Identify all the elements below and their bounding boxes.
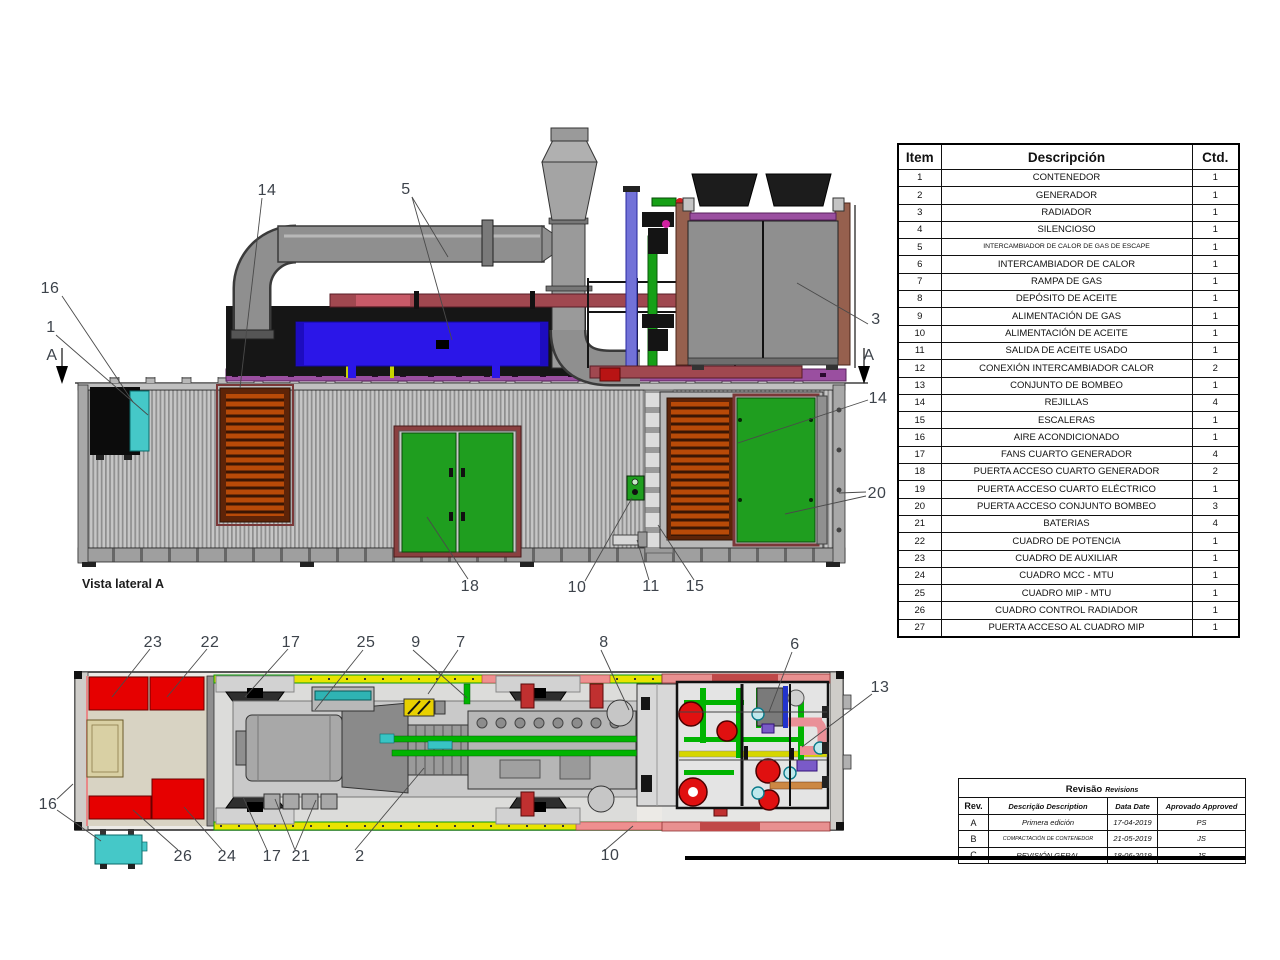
louver-grille-left bbox=[217, 385, 293, 525]
callout-10: 10 bbox=[568, 579, 587, 597]
bom-item: 18 bbox=[898, 464, 941, 481]
bom-row: 17FANS CUARTO GENERADOR4 bbox=[898, 446, 1239, 463]
callout-A: A bbox=[863, 347, 874, 365]
bom-desc: PUERTA ACCESO CONJUNTO BOMBEO bbox=[941, 498, 1192, 515]
bom-row: 8DEPÓSITO DE ACEITE1 bbox=[898, 291, 1239, 308]
oil-feed-box bbox=[627, 476, 644, 500]
bom-item: 20 bbox=[898, 498, 941, 515]
callout-9: 9 bbox=[411, 634, 420, 652]
bom-row: 14REJILLAS4 bbox=[898, 394, 1239, 411]
bom-row: 1CONTENEDOR1 bbox=[898, 170, 1239, 187]
bom-item: 12 bbox=[898, 360, 941, 377]
bom-desc: INTERCAMBIADOR DE CALOR bbox=[941, 256, 1192, 273]
bom-desc: CUADRO CONTROL RADIADOR bbox=[941, 602, 1192, 619]
bom-qty: 1 bbox=[1192, 325, 1239, 342]
bom-item: 5 bbox=[898, 239, 941, 256]
bom-row: 13CONJUNTO DE BOMBEO1 bbox=[898, 377, 1239, 394]
bom-row: 3RADIADOR1 bbox=[898, 204, 1239, 221]
bom-row: 27PUERTA ACCESO AL CUADRO MIP1 bbox=[898, 619, 1239, 637]
bom-item: 8 bbox=[898, 291, 941, 308]
bom-qty: 1 bbox=[1192, 377, 1239, 394]
rev-letter: B bbox=[959, 831, 989, 847]
bom-item: 9 bbox=[898, 308, 941, 325]
bom-desc: CUADRO MIP - MTU bbox=[941, 585, 1192, 602]
bom-item: 11 bbox=[898, 342, 941, 359]
gas-ramp bbox=[404, 699, 445, 716]
bom-row: 6INTERCAMBIADOR DE CALOR1 bbox=[898, 256, 1239, 273]
bom-desc: AIRE ACONDICIONADO bbox=[941, 429, 1192, 446]
callout-A: A bbox=[46, 347, 57, 365]
rev-desc: COMPACTACIÓN DE CONTENEDOR bbox=[989, 831, 1108, 847]
bom-desc: GENERADOR bbox=[941, 187, 1192, 204]
callout-13: 13 bbox=[871, 679, 890, 697]
bom-desc: SILENCIOSO bbox=[941, 221, 1192, 238]
bom-desc: PUERTA ACCESO CUARTO ELÉCTRICO bbox=[941, 481, 1192, 498]
revision-title: RevisãoRevisions bbox=[959, 779, 1246, 798]
revision-title-pt: Revisão bbox=[1066, 784, 1102, 795]
bom-item: 3 bbox=[898, 204, 941, 221]
bom-item: 22 bbox=[898, 533, 941, 550]
plan-view bbox=[57, 649, 872, 869]
rev-approved: JS bbox=[1158, 831, 1246, 847]
revision-header-row: Rev. Descrição Description Data Date Apr… bbox=[959, 798, 1246, 815]
bom-qty: 1 bbox=[1192, 291, 1239, 308]
callout-18: 18 bbox=[461, 578, 480, 596]
bom-row: 23CUADRO DE AUXILIAR1 bbox=[898, 550, 1239, 567]
bom-row: 25CUADRO MIP - MTU1 bbox=[898, 585, 1239, 602]
revision-header-desc: Descrição Description bbox=[989, 798, 1108, 815]
callout-15: 15 bbox=[686, 578, 705, 596]
rev-date: 21-05-2019 bbox=[1108, 831, 1158, 847]
bom-row: 16AIRE ACONDICIONADO1 bbox=[898, 429, 1239, 446]
bom-desc: INTERCAMBIADOR DE CALOR DE GAS DE ESCAPE bbox=[941, 239, 1192, 256]
bom-desc: BATERIAS bbox=[941, 515, 1192, 532]
callout-16: 16 bbox=[39, 796, 58, 814]
callout-11: 11 bbox=[642, 578, 660, 596]
bom-row: 21BATERIAS4 bbox=[898, 515, 1239, 532]
callout-24: 24 bbox=[218, 848, 237, 866]
bom-header-row: Item Descripción Ctd. bbox=[898, 144, 1239, 170]
bom-row: 19PUERTA ACCESO CUARTO ELÉCTRICO1 bbox=[898, 481, 1239, 498]
bom-qty: 1 bbox=[1192, 550, 1239, 567]
bom-desc: DEPÓSITO DE ACEITE bbox=[941, 291, 1192, 308]
revision-title-row: RevisãoRevisions bbox=[959, 779, 1246, 798]
callout-17: 17 bbox=[282, 634, 301, 652]
bom-row: 2GENERADOR1 bbox=[898, 187, 1239, 204]
bom-qty: 4 bbox=[1192, 394, 1239, 411]
bom-row: 18PUERTA ACCESO CUARTO GENERADOR2 bbox=[898, 464, 1239, 481]
bom-item: 14 bbox=[898, 394, 941, 411]
bom-desc: REJILLAS bbox=[941, 394, 1192, 411]
rev-letter: A bbox=[959, 815, 989, 831]
bom-row: 20PUERTA ACCESO CONJUNTO BOMBEO3 bbox=[898, 498, 1239, 515]
bom-item: 24 bbox=[898, 567, 941, 584]
bom-row: 4SILENCIOSO1 bbox=[898, 221, 1239, 238]
bom-row: 10ALIMENTACIÓN DE ACEITE1 bbox=[898, 325, 1239, 342]
rev-desc: Primera edición bbox=[989, 815, 1108, 831]
callout-7: 7 bbox=[456, 634, 465, 652]
bom-qty: 1 bbox=[1192, 187, 1239, 204]
bom-row: 26CUADRO CONTROL RADIADOR1 bbox=[898, 602, 1239, 619]
radiator-pipes bbox=[623, 186, 684, 369]
bom-row: 11SALIDA DE ACEITE USADO1 bbox=[898, 342, 1239, 359]
ac-unit-side bbox=[90, 387, 149, 460]
callout-14: 14 bbox=[869, 390, 888, 408]
bom-qty: 1 bbox=[1192, 342, 1239, 359]
bom-qty: 1 bbox=[1192, 602, 1239, 619]
bom-qty: 1 bbox=[1192, 412, 1239, 429]
bom-item: 27 bbox=[898, 619, 941, 637]
bom-desc: FANS CUARTO GENERADOR bbox=[941, 446, 1192, 463]
side-view-caption: Vista lateral A bbox=[82, 577, 164, 591]
bom-qty: 3 bbox=[1192, 498, 1239, 515]
bom-qty: 2 bbox=[1192, 464, 1239, 481]
bom-item: 26 bbox=[898, 602, 941, 619]
bom-item: 6 bbox=[898, 256, 941, 273]
bom-desc: CUADRO DE POTENCIA bbox=[941, 533, 1192, 550]
bom-item: 13 bbox=[898, 377, 941, 394]
rev-approved: PS bbox=[1158, 815, 1246, 831]
bom-desc: ESCALERAS bbox=[941, 412, 1192, 429]
bom-item: 19 bbox=[898, 481, 941, 498]
bom-row: 5INTERCAMBIADOR DE CALOR DE GAS DE ESCAP… bbox=[898, 239, 1239, 256]
bom-desc: CONJUNTO DE BOMBEO bbox=[941, 377, 1192, 394]
revision-header-approved: Aprovado Approved bbox=[1158, 798, 1246, 815]
bom-qty: 1 bbox=[1192, 221, 1239, 238]
callout-10: 10 bbox=[601, 847, 620, 865]
bom-row: 7RAMPA DE GAS1 bbox=[898, 273, 1239, 290]
callout-23: 23 bbox=[144, 634, 163, 652]
callout-16: 16 bbox=[41, 280, 60, 298]
bom-row: 9ALIMENTACIÓN DE GAS1 bbox=[898, 308, 1239, 325]
callout-8: 8 bbox=[599, 634, 608, 652]
bom-item: 10 bbox=[898, 325, 941, 342]
bom-desc: CUADRO DE AUXILIAR bbox=[941, 550, 1192, 567]
callout-6: 6 bbox=[790, 636, 799, 654]
bom-desc: CUADRO MCC - MTU bbox=[941, 567, 1192, 584]
bom-qty: 1 bbox=[1192, 619, 1239, 637]
bom-row: 15ESCALERAS1 bbox=[898, 412, 1239, 429]
section-marker-A-left bbox=[56, 348, 68, 384]
pump-room-facade bbox=[660, 392, 827, 548]
bom-qty: 1 bbox=[1192, 256, 1239, 273]
bom-qty: 4 bbox=[1192, 515, 1239, 532]
bom-row: 12CONEXIÓN INTERCAMBIADOR CALOR2 bbox=[898, 360, 1239, 377]
bom-item: 4 bbox=[898, 221, 941, 238]
bom-item: 15 bbox=[898, 412, 941, 429]
callout-1: 1 bbox=[46, 319, 55, 337]
revision-header-rev: Rev. bbox=[959, 798, 989, 815]
bom-qty: 1 bbox=[1192, 429, 1239, 446]
bom-qty: 1 bbox=[1192, 239, 1239, 256]
engineering-drawing-page: 161A1453A142018101115 232217259786131626… bbox=[0, 0, 1280, 960]
bom-table: Item Descripción Ctd. 1CONTENEDOR12GENER… bbox=[897, 143, 1240, 638]
bom-item: 21 bbox=[898, 515, 941, 532]
callout-25: 25 bbox=[357, 634, 376, 652]
bom-qty: 1 bbox=[1192, 204, 1239, 221]
bom-desc: RAMPA DE GAS bbox=[941, 273, 1192, 290]
rev-date: 17-04-2019 bbox=[1108, 815, 1158, 831]
callout-3: 3 bbox=[871, 311, 880, 329]
bom-desc: ALIMENTACIÓN DE ACEITE bbox=[941, 325, 1192, 342]
pumping-skid bbox=[677, 682, 851, 810]
bom-table-body: 1CONTENEDOR12GENERADOR13RADIADOR14SILENC… bbox=[898, 170, 1239, 638]
bom-header-qty: Ctd. bbox=[1192, 144, 1239, 170]
bom-item: 17 bbox=[898, 446, 941, 463]
revision-table: RevisãoRevisions Rev. Descrição Descript… bbox=[958, 778, 1246, 864]
bom-row: 22CUADRO DE POTENCIA1 bbox=[898, 533, 1239, 550]
bom-desc: RADIADOR bbox=[941, 204, 1192, 221]
bom-qty: 1 bbox=[1192, 567, 1239, 584]
bom-item: 16 bbox=[898, 429, 941, 446]
cuadro-mip bbox=[312, 687, 374, 711]
callout-5: 5 bbox=[401, 181, 410, 199]
bom-desc: CONEXIÓN INTERCAMBIADOR CALOR bbox=[941, 360, 1192, 377]
bom-desc: PUERTA ACCESO CUARTO GENERADOR bbox=[941, 464, 1192, 481]
bom-desc: ALIMENTACIÓN DE GAS bbox=[941, 308, 1192, 325]
bom-header-desc: Descripción bbox=[941, 144, 1192, 170]
bom-qty: 2 bbox=[1192, 360, 1239, 377]
callout-20: 20 bbox=[868, 485, 887, 503]
revision-header-date: Data Date bbox=[1108, 798, 1158, 815]
radiator bbox=[676, 174, 855, 370]
bom-qty: 1 bbox=[1192, 273, 1239, 290]
bom-row: 24CUADRO MCC - MTU1 bbox=[898, 567, 1239, 584]
bom-qty: 1 bbox=[1192, 585, 1239, 602]
bom-desc: CONTENEDOR bbox=[941, 170, 1192, 187]
side-view bbox=[56, 128, 870, 581]
bom-desc: SALIDA DE ACEITE USADO bbox=[941, 342, 1192, 359]
bom-qty: 1 bbox=[1192, 481, 1239, 498]
bom-desc: PUERTA ACCESO AL CUADRO MIP bbox=[941, 619, 1192, 637]
callout-22: 22 bbox=[201, 634, 220, 652]
bom-qty: 1 bbox=[1192, 308, 1239, 325]
ac-unit-plan bbox=[95, 829, 147, 869]
bom-item: 2 bbox=[898, 187, 941, 204]
callout-2: 2 bbox=[355, 848, 364, 866]
callout-17: 17 bbox=[263, 848, 282, 866]
border-rule bbox=[685, 856, 1245, 860]
callout-14: 14 bbox=[258, 182, 277, 200]
bom-header-item: Item bbox=[898, 144, 941, 170]
generator-room-doors bbox=[394, 426, 521, 557]
callout-26: 26 bbox=[174, 848, 193, 866]
exhaust-stack bbox=[542, 128, 640, 368]
bom-qty: 4 bbox=[1192, 446, 1239, 463]
bom-item: 25 bbox=[898, 585, 941, 602]
bom-item: 23 bbox=[898, 550, 941, 567]
bom-qty: 1 bbox=[1192, 170, 1239, 187]
bom-qty: 1 bbox=[1192, 533, 1239, 550]
bom-item: 1 bbox=[898, 170, 941, 187]
revision-row: BCOMPACTACIÓN DE CONTENEDOR21-05-2019JS bbox=[959, 831, 1246, 847]
bom-item: 7 bbox=[898, 273, 941, 290]
oil-tank bbox=[637, 684, 677, 806]
callout-21: 21 bbox=[292, 848, 311, 866]
revision-title-en: Revisions bbox=[1105, 787, 1138, 794]
revision-row: APrimera edición17-04-2019PS bbox=[959, 815, 1246, 831]
